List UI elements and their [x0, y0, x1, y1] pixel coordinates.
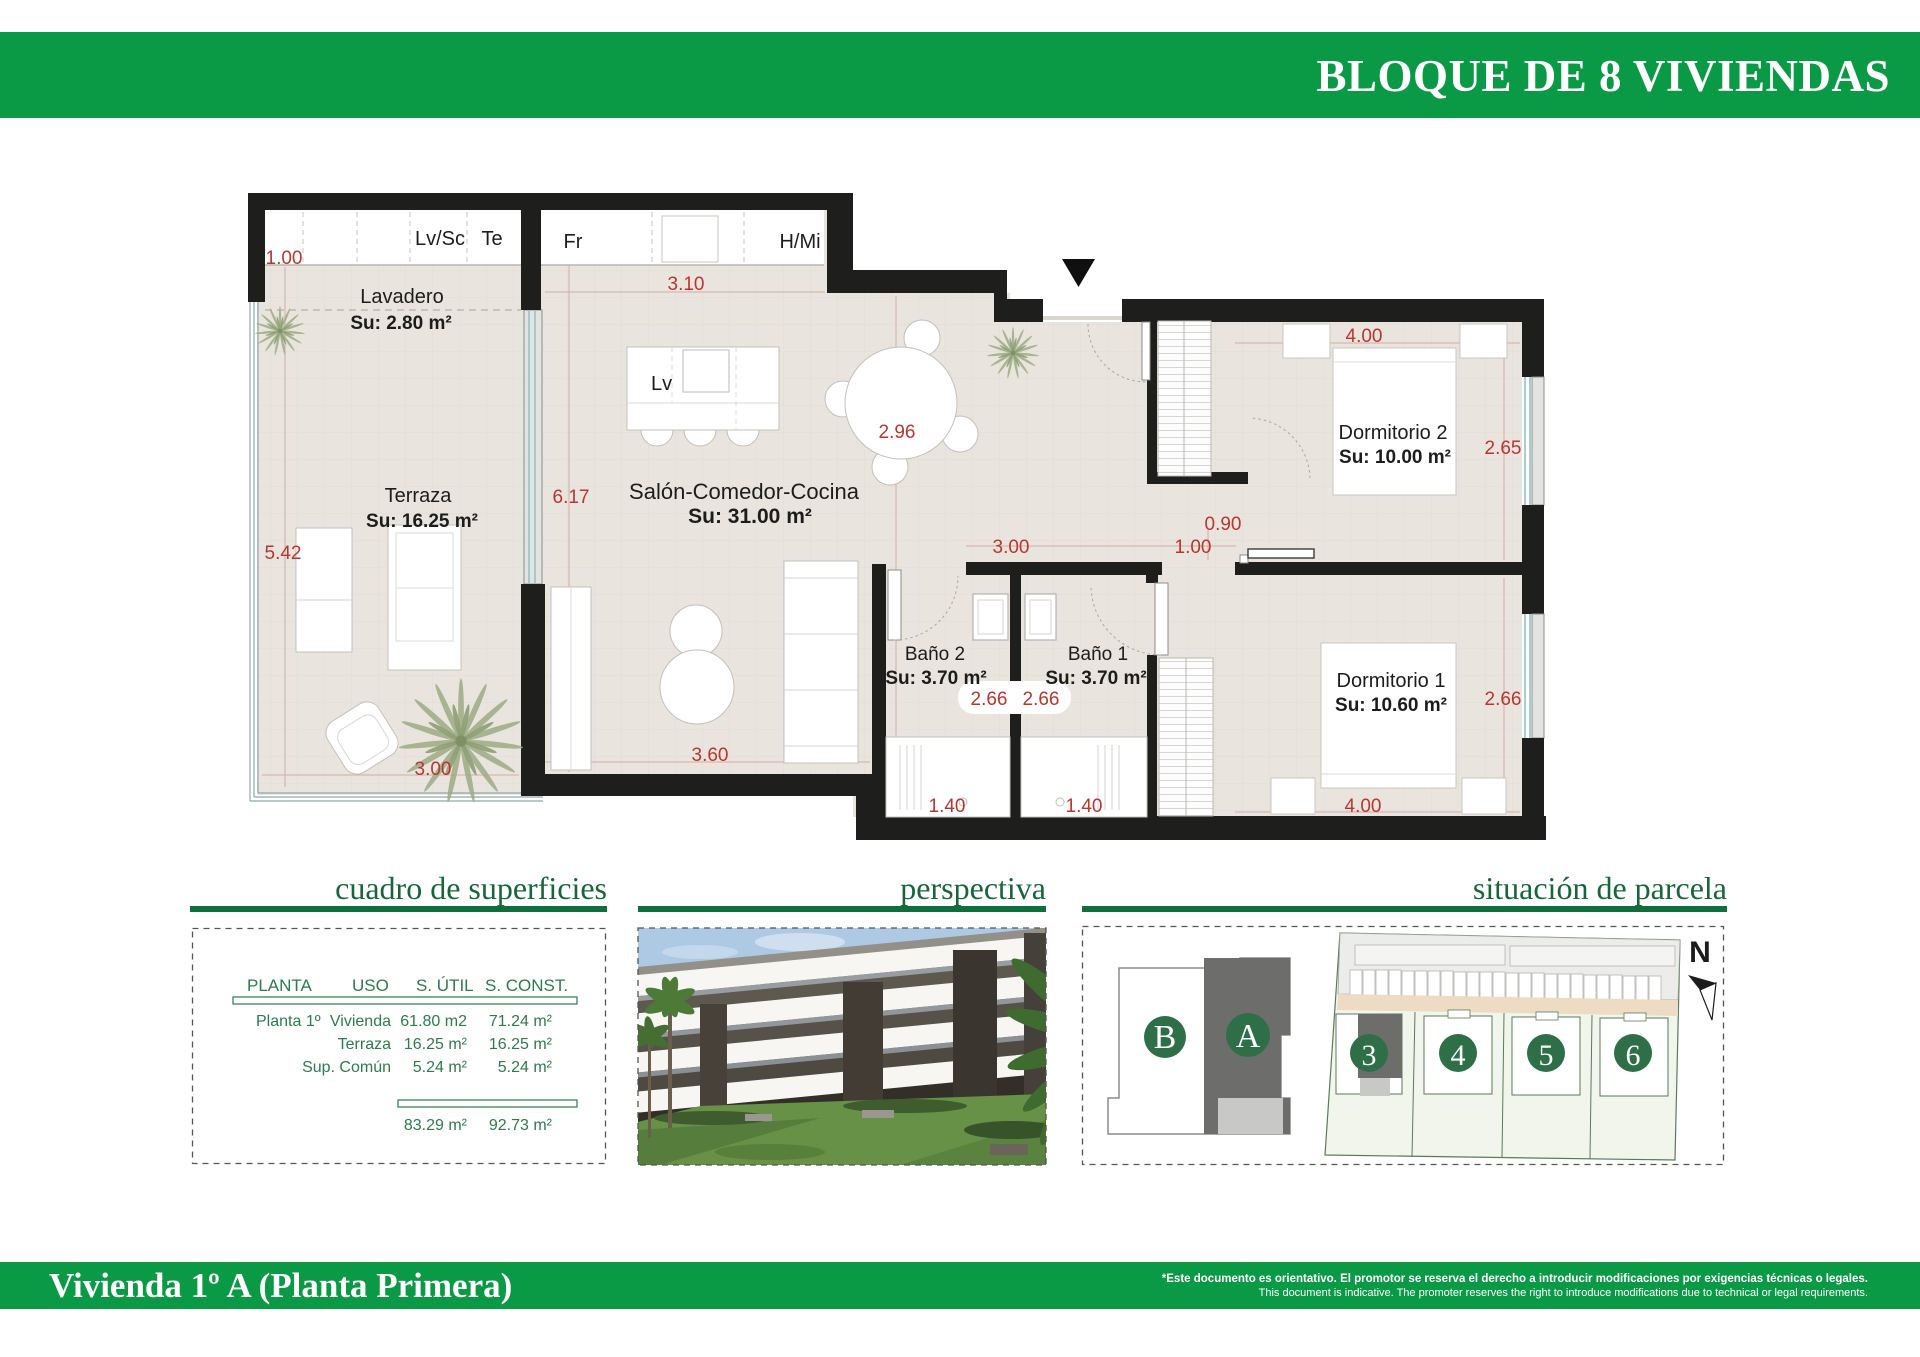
svg-text:S. CONST.: S. CONST.	[485, 976, 568, 995]
svg-text:3.10: 3.10	[668, 274, 705, 295]
svg-text:Su: 2.80 m²: Su: 2.80 m²	[350, 313, 451, 334]
svg-text:Dormitorio 2: Dormitorio 2	[1339, 422, 1448, 444]
svg-text:Planta 1º: Planta 1º	[256, 1013, 321, 1030]
svg-text:4.00: 4.00	[1346, 326, 1383, 347]
svg-text:4.00: 4.00	[1345, 796, 1382, 817]
svg-text:2.65: 2.65	[1485, 438, 1522, 459]
svg-text:71.24 m²: 71.24 m²	[489, 1013, 553, 1030]
svg-text:Sup. Común: Sup. Común	[302, 1059, 391, 1076]
svg-text:Vivienda 1º A (Planta Primera): Vivienda 1º A (Planta Primera)	[49, 1266, 512, 1305]
svg-text:BLOQUE DE 8 VIVIENDAS: BLOQUE DE 8 VIVIENDAS	[1316, 51, 1890, 101]
svg-text:Fr: Fr	[564, 231, 583, 253]
svg-text:Lv: Lv	[651, 373, 672, 395]
svg-text:Te: Te	[481, 228, 502, 250]
svg-text:2.66: 2.66	[971, 689, 1008, 710]
svg-text:Lavadero: Lavadero	[360, 286, 443, 308]
svg-text:A: A	[1236, 1018, 1261, 1055]
svg-text:5.24 m²: 5.24 m²	[498, 1059, 553, 1076]
svg-text:61.80 m2: 61.80 m2	[400, 1013, 467, 1030]
svg-text:cuadro de superficies: cuadro de superficies	[335, 870, 607, 906]
svg-text:B: B	[1154, 1019, 1177, 1056]
svg-text:3.00: 3.00	[415, 759, 452, 780]
svg-text:16.25 m²: 16.25 m²	[404, 1036, 468, 1053]
svg-text:6.17: 6.17	[553, 487, 590, 508]
svg-text:Su: 16.25 m²: Su: 16.25 m²	[366, 511, 478, 532]
svg-text:H/Mi: H/Mi	[779, 231, 820, 253]
svg-text:5.42: 5.42	[265, 543, 302, 564]
svg-text:perspectiva: perspectiva	[900, 870, 1046, 906]
svg-text:16.25 m²: 16.25 m²	[489, 1036, 553, 1053]
svg-text:1.00: 1.00	[266, 248, 303, 269]
svg-text:Su: 10.00 m²: Su: 10.00 m²	[1339, 447, 1451, 468]
svg-text:PLANTA: PLANTA	[247, 976, 313, 995]
svg-text:Salón-Comedor-Cocina: Salón-Comedor-Cocina	[629, 479, 860, 504]
svg-text:Terraza: Terraza	[385, 485, 453, 507]
svg-text:Vivienda: Vivienda	[330, 1013, 391, 1030]
svg-text:Baño 2: Baño 2	[905, 644, 965, 665]
svg-text:Terraza: Terraza	[338, 1036, 391, 1053]
svg-text:S. ÚTIL: S. ÚTIL	[416, 976, 474, 995]
svg-text:5: 5	[1539, 1039, 1554, 1072]
svg-text:Dormitorio 1: Dormitorio 1	[1337, 670, 1446, 692]
svg-text:USO: USO	[352, 976, 389, 995]
svg-text:2.96: 2.96	[879, 422, 916, 443]
svg-text:0.90: 0.90	[1205, 514, 1242, 535]
svg-text:92.73 m²: 92.73 m²	[489, 1117, 553, 1134]
svg-text:Su: 31.00 m²: Su: 31.00 m²	[688, 505, 812, 528]
svg-text:3: 3	[1362, 1039, 1377, 1072]
svg-text:5.24 m²: 5.24 m²	[413, 1059, 468, 1076]
svg-text:This document is indicative. T: This document is indicative. The promote…	[1259, 1287, 1868, 1299]
svg-text:3.60: 3.60	[692, 745, 729, 766]
svg-text:3.00: 3.00	[993, 537, 1030, 558]
svg-text:1.40: 1.40	[929, 796, 966, 817]
svg-text:1.00: 1.00	[1175, 537, 1212, 558]
svg-text:Su: 3.70 m²: Su: 3.70 m²	[1045, 668, 1146, 689]
svg-text:1.40: 1.40	[1066, 796, 1103, 817]
svg-text:Lv/Sc: Lv/Sc	[415, 228, 465, 250]
svg-text:4: 4	[1451, 1039, 1466, 1072]
svg-text:Su: 3.70 m²: Su: 3.70 m²	[885, 668, 986, 689]
svg-text:N: N	[1689, 936, 1711, 969]
svg-text:6: 6	[1626, 1039, 1641, 1072]
svg-text:*Este documento es orientativo: *Este documento es orientativo. El promo…	[1162, 1273, 1868, 1285]
svg-text:2.66: 2.66	[1485, 689, 1522, 710]
svg-text:Baño 1: Baño 1	[1068, 644, 1128, 665]
svg-text:Su: 10.60 m²: Su: 10.60 m²	[1335, 695, 1447, 716]
svg-text:situación de parcela: situación de parcela	[1473, 870, 1727, 906]
svg-text:83.29 m²: 83.29 m²	[404, 1117, 468, 1134]
svg-text:2.66: 2.66	[1023, 689, 1060, 710]
